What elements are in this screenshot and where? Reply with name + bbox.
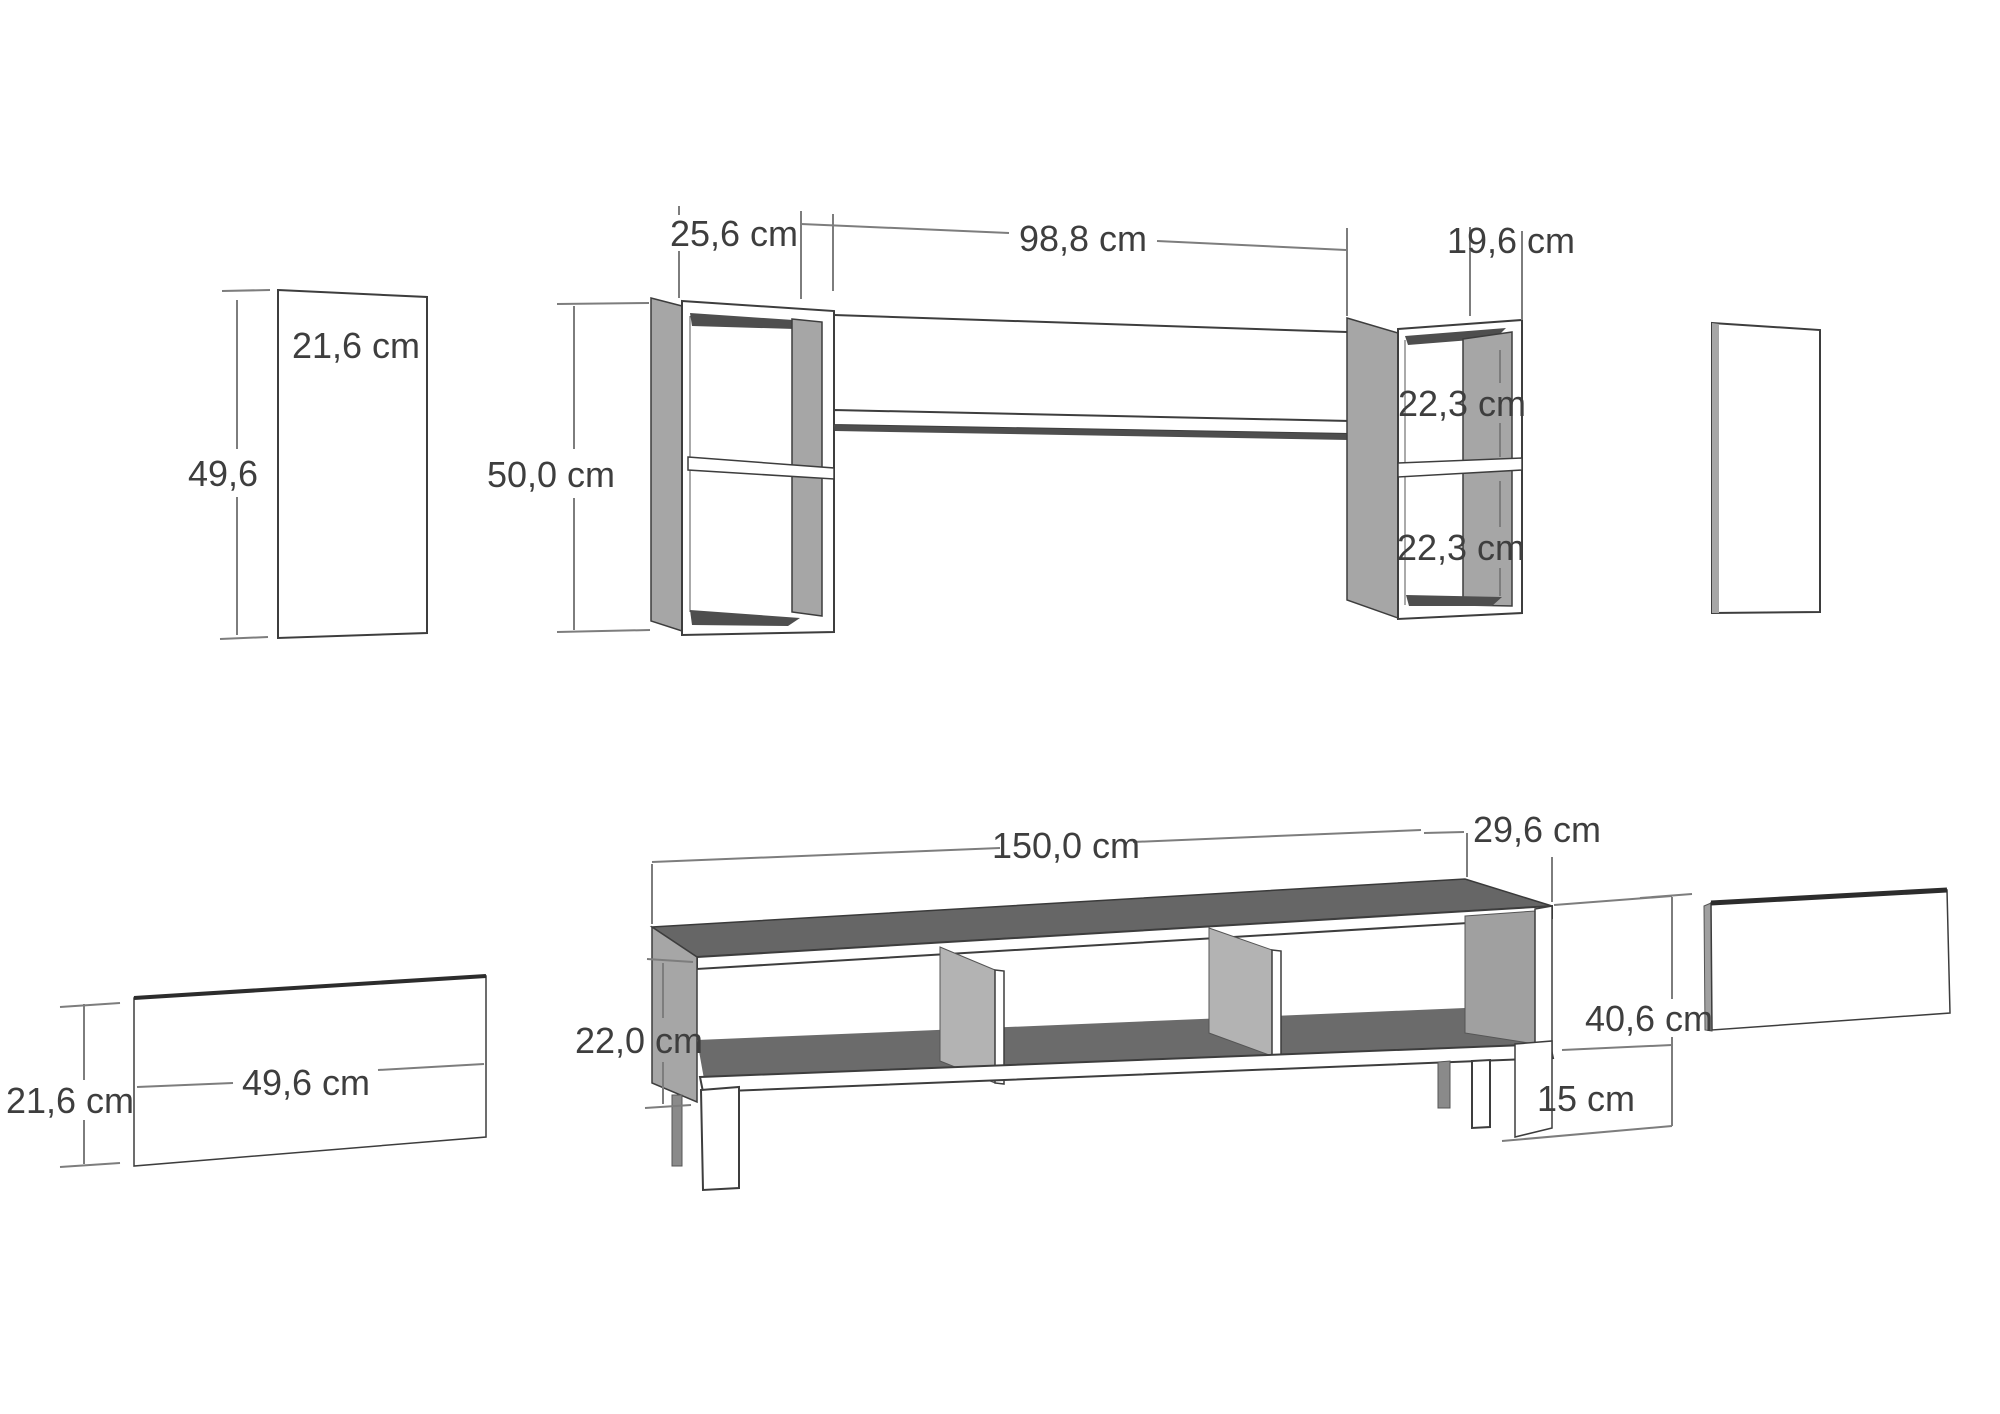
label-wall-box-right-upper: 22,3 cm [1398,383,1526,424]
label-wall-box-height: 50,0 cm [487,454,615,495]
label-wall-panel-height: 49,6 [188,453,258,494]
tv-stand-leg-front-left [701,1087,739,1190]
label-stand-panel-width: 49,6 cm [242,1062,370,1103]
wall-box-right [1347,318,1522,619]
label-wall-box-left-depth: 25,6 cm [670,213,798,254]
tv-stand-right-front-edge [1535,906,1552,1057]
stand-side-panel-right-piece [1704,890,1950,1031]
stand-side-panel-right-face [1711,890,1950,1030]
tv-stand-right-inner-side [1465,911,1535,1044]
wall-box-left [651,298,834,635]
wall-side-panel-right-edge [1712,323,1719,613]
wall-box-right-side [1347,318,1398,618]
diagram-page: 21,6 cm 49,6 25,6 cm 98,8 cm 19,6 cm 50,… [0,0,2000,1414]
label-wall-box-right-depth: 19,6 cm [1447,220,1575,261]
tv-stand [652,879,1553,1190]
label-wall-panel-width: 21,6 cm [292,325,420,366]
label-wall-shelf-span: 98,8 cm [1019,218,1147,259]
wall-side-panel-right [1712,323,1820,613]
tv-stand-divider-2-side [1209,928,1272,1056]
tv-stand-divider-1-side [940,947,995,1083]
label-wall-box-right-lower: 22,3 cm [1397,527,1525,568]
wall-box-left-side [651,298,682,631]
label-stand-width: 150,0 cm [992,825,1140,866]
label-stand-height: 40,6 cm [1585,998,1713,1039]
tv-stand-leg-back-right [1438,1061,1450,1108]
wall-side-panel-right-face [1712,323,1820,613]
tv-stand-divider-2-front [1272,950,1281,1058]
label-stand-depth: 29,6 cm [1473,809,1601,850]
tv-stand-left-side [652,927,697,1102]
wall-long-shelf [834,410,1350,440]
label-stand-panel-height: 21,6 cm [6,1080,134,1121]
label-stand-leg-height: 15 cm [1537,1078,1635,1119]
wall-back-rail-edge [834,315,1347,332]
tv-stand-leg-front-right [1472,1060,1490,1128]
label-stand-opening-height: 22,0 cm [575,1020,703,1061]
furniture-diagram: 21,6 cm 49,6 25,6 cm 98,8 cm 19,6 cm 50,… [0,0,2000,1414]
